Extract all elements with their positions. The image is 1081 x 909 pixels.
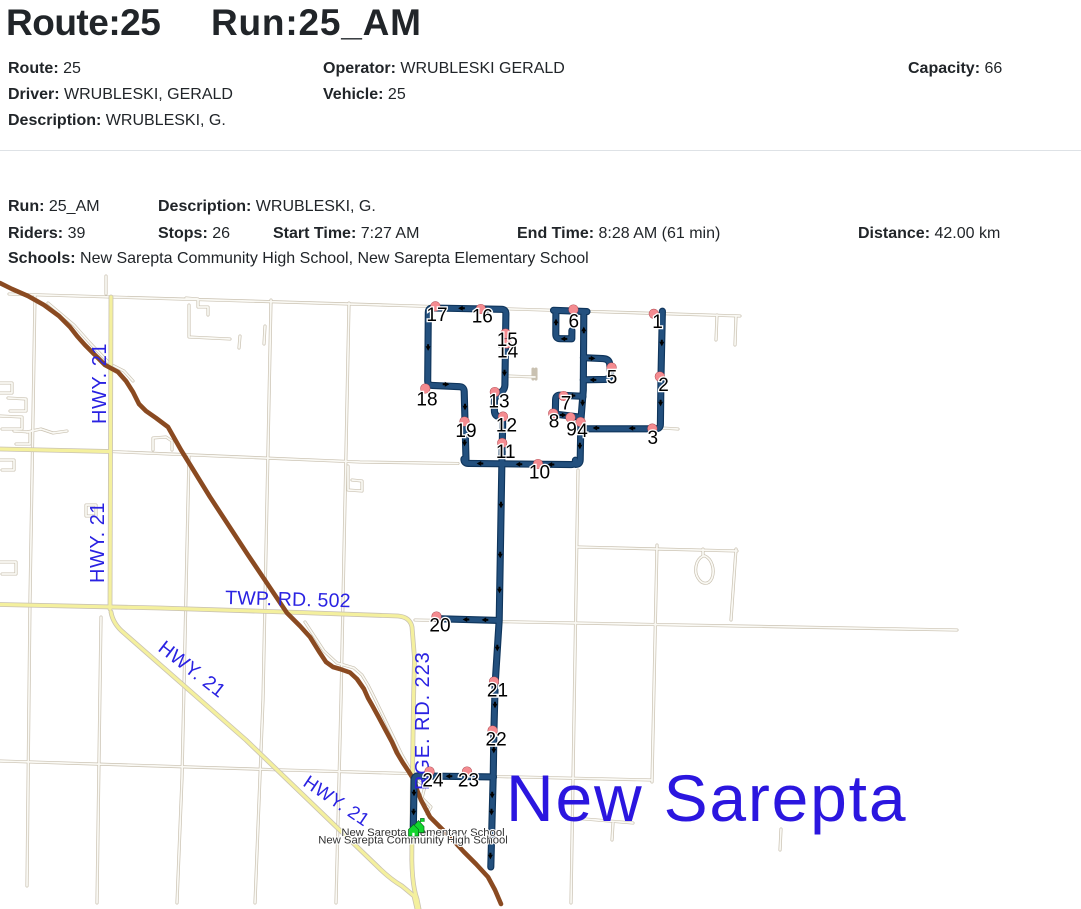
- svg-text:3: 3: [648, 428, 659, 449]
- svg-text:1: 1: [652, 312, 663, 333]
- svg-text:23: 23: [458, 771, 479, 792]
- svg-text:15: 15: [497, 330, 518, 351]
- svg-text:HWY. 21: HWY. 21: [89, 343, 111, 424]
- svg-text:12: 12: [496, 416, 517, 437]
- svg-text:9: 9: [566, 420, 577, 441]
- svg-text:24: 24: [422, 771, 444, 792]
- svg-text:11: 11: [496, 442, 516, 463]
- svg-text:17: 17: [426, 305, 447, 326]
- svg-text:16: 16: [472, 307, 493, 328]
- svg-text:HWY. 21: HWY. 21: [87, 502, 109, 583]
- svg-text:19: 19: [455, 421, 476, 442]
- svg-text:13: 13: [488, 392, 509, 413]
- svg-text:6: 6: [569, 312, 580, 333]
- svg-text:20: 20: [429, 616, 450, 637]
- svg-text:8: 8: [549, 412, 560, 433]
- svg-text:7: 7: [561, 394, 572, 415]
- svg-text:18: 18: [416, 390, 437, 411]
- svg-text:4: 4: [577, 421, 588, 442]
- svg-text:22: 22: [486, 730, 507, 751]
- svg-text:TWP. RD. 502: TWP. RD. 502: [225, 587, 351, 612]
- svg-text:10: 10: [529, 463, 550, 484]
- svg-text:21: 21: [487, 681, 508, 702]
- svg-text:2: 2: [658, 375, 669, 396]
- svg-text:5: 5: [607, 368, 618, 389]
- svg-text:New Sarepta: New Sarepta: [506, 761, 907, 835]
